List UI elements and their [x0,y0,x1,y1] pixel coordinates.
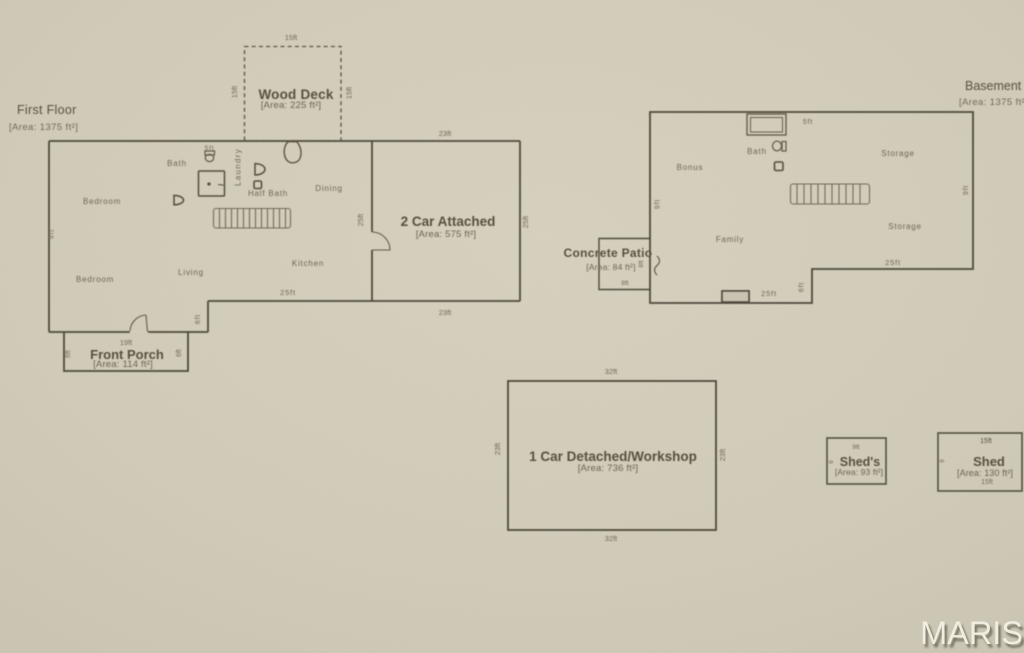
svg-text:Bonus: Bonus [677,163,704,172]
svg-text:6: 6 [828,460,835,464]
svg-text:15ft: 15ft [345,86,354,99]
svg-text:Storage: Storage [881,149,915,158]
svg-text:15ft: 15ft [285,33,298,42]
svg-text:6ft: 6ft [176,349,183,357]
svg-text:25ft: 25ft [885,258,901,267]
svg-text:Kitchen: Kitchen [292,259,324,268]
svg-text:First Floor: First Floor [17,103,77,117]
svg-text:[Area: 1375 ft²]: [Area: 1375 ft²] [9,122,78,133]
svg-text:19ft: 19ft [120,338,133,347]
svg-text:15ft: 15ft [980,438,992,445]
svg-text:[Area: 84 ft²]: [Area: 84 ft²] [586,262,636,272]
svg-text:25ft: 25ft [521,215,530,228]
svg-text:Bedroom: Bedroom [83,197,121,206]
svg-text:Laundry: Laundry [234,148,243,186]
svg-text:8ft: 8ft [638,260,645,267]
svg-text:6ft: 6ft [65,350,72,358]
svg-text:MARIS: MARIS [920,615,1023,651]
svg-text:5ft: 5ft [803,119,813,126]
svg-text:9: 9 [939,459,946,463]
svg-text:6ft: 6ft [799,282,806,292]
svg-text:Basement: Basement [965,79,1022,93]
svg-text:23ft: 23ft [439,308,452,317]
svg-text:[Area: 1375 ft²]: [Area: 1375 ft²] [959,97,1024,108]
svg-text:23ft: 23ft [493,442,502,455]
svg-text:23ft: 23ft [439,129,452,138]
svg-text:25ft: 25ft [356,213,365,226]
svg-text:Shed: Shed [973,454,1005,469]
svg-text:1 Car Detached/Workshop: 1 Car Detached/Workshop [529,449,697,464]
svg-text:25ft: 25ft [761,289,777,298]
svg-text:23ft: 23ft [718,448,727,461]
svg-text:5ft: 5ft [205,145,215,152]
svg-text:32ft: 32ft [605,367,618,376]
svg-text:Bath: Bath [167,159,187,168]
svg-text:15ft: 15ft [981,479,993,486]
svg-text:Bath: Bath [747,147,767,156]
svg-text:9ft: 9ft [49,229,56,239]
svg-text:25ft: 25ft [280,288,296,297]
svg-text:[Area: 130 ft²]: [Area: 130 ft²] [957,468,1013,478]
svg-text:9ft: 9ft [852,444,859,451]
svg-text:15ft: 15ft [230,85,239,98]
svg-text:Storage: Storage [888,222,922,231]
svg-text:2 Car Attached: 2 Car Attached [401,214,496,229]
svg-text:32ft: 32ft [605,534,618,543]
svg-text:6ft: 6ft [195,314,202,324]
svg-text:Concrete Patio: Concrete Patio [564,246,653,260]
svg-text:[Area: 93 ft²]: [Area: 93 ft²] [835,467,883,477]
svg-text:[Area: 575 ft²]: [Area: 575 ft²] [416,229,477,240]
svg-text:9ft: 9ft [655,199,662,209]
svg-text:[Area: 114 ft²]: [Area: 114 ft²] [93,359,153,370]
svg-text:Bedroom: Bedroom [76,275,114,284]
svg-text:[Area: 225 ft²]: [Area: 225 ft²] [261,100,322,111]
svg-text:Half Bath: Half Bath [248,189,288,198]
svg-text:8ft: 8ft [621,280,628,287]
svg-text:9ft: 9ft [963,185,970,195]
svg-text:Dining: Dining [315,184,342,193]
svg-text:[Area: 736 ft²]: [Area: 736 ft²] [578,463,639,474]
svg-text:Family: Family [716,235,744,244]
svg-text:Living: Living [178,268,204,277]
